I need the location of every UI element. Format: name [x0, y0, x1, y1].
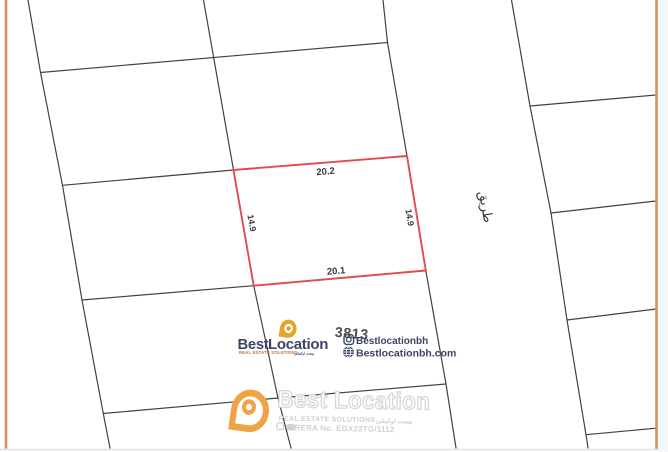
svg-text:RERA No. EGX23TG/1112: RERA No. EGX23TG/1112	[294, 423, 394, 434]
svg-text:20.2: 20.2	[316, 166, 335, 179]
svg-text:REAL ESTATE SOLUTIONS: REAL ESTATE SOLUTIONS	[239, 350, 298, 355]
svg-text:Bestlocationbh.com: Bestlocationbh.com	[356, 348, 456, 360]
svg-text:بيست لوكيشن: بيست لوكيشن	[294, 351, 314, 355]
svg-text:Best Location: Best Location	[277, 385, 430, 415]
svg-text:20.1: 20.1	[326, 265, 346, 278]
svg-text:Bestlocationbh: Bestlocationbh	[356, 336, 428, 347]
